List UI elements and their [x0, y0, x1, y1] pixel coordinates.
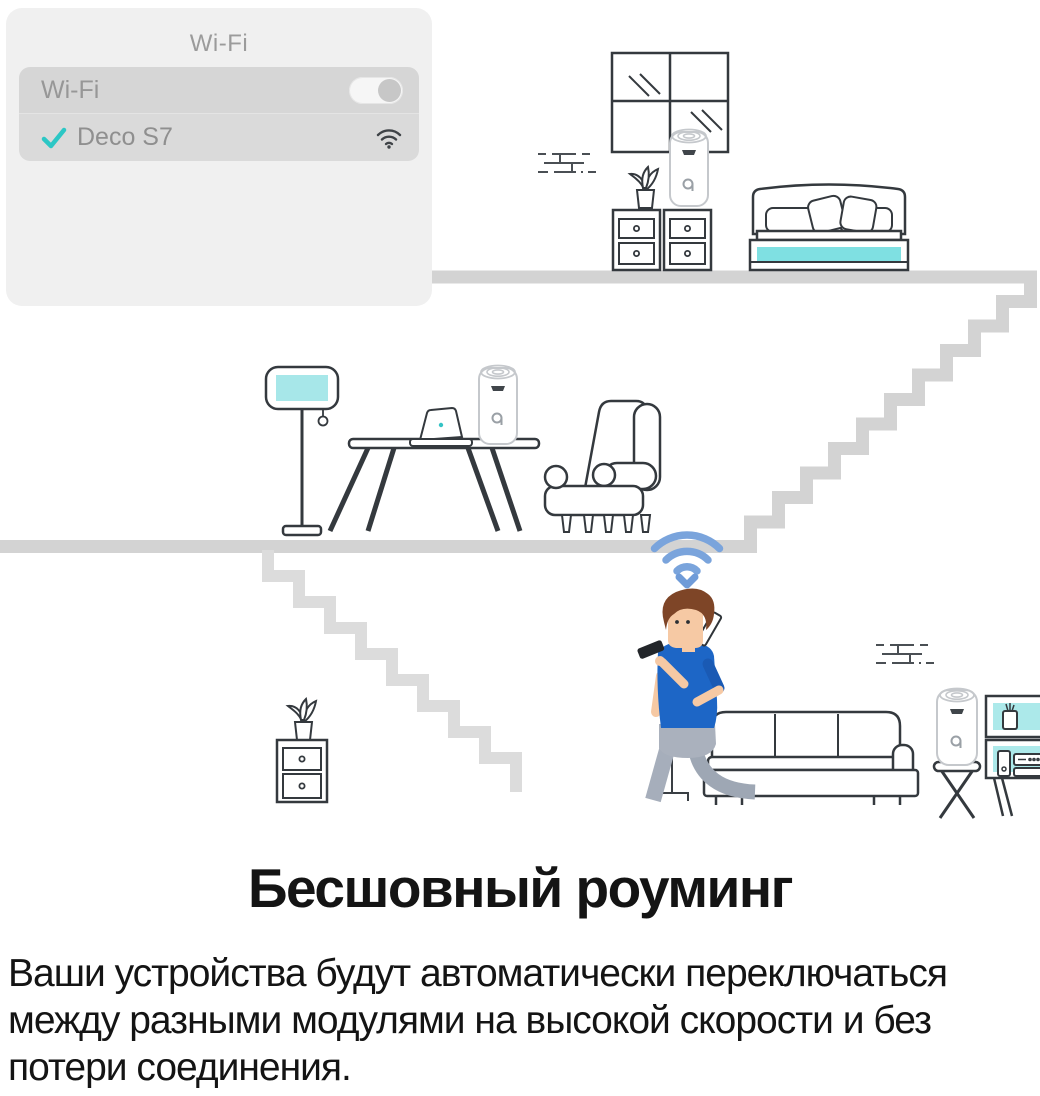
armchair-legs [562, 515, 650, 532]
wifi-toggle-row: Wi-Fi [19, 67, 419, 114]
deco-unit-upper [670, 130, 708, 207]
wifi-settings-card: Wi-Fi Wi-Fi Deco S7 [6, 8, 432, 306]
network-list-item[interactable]: Deco S7 [19, 114, 419, 161]
wifi-card-title: Wi-Fi [6, 30, 432, 58]
plant-lower [288, 699, 316, 740]
caption-body-line: потери соединения. [8, 1044, 1040, 1091]
wifi-signal-icon [375, 126, 403, 150]
lamp-screen [276, 375, 328, 401]
person-eye-right [686, 620, 690, 624]
deco-led [491, 386, 505, 391]
deco-led [682, 150, 696, 155]
table [330, 439, 539, 531]
caption-body-line: Ваши устройства будут автоматически пере… [8, 950, 1040, 997]
armchair [545, 401, 660, 532]
caption-heading: Бесшовный роуминг [0, 856, 1040, 920]
bed-accent-stripe [757, 247, 901, 262]
media-devices-icon [998, 751, 1040, 776]
person-hand [655, 656, 665, 666]
deco-led [950, 709, 964, 714]
side-table [934, 762, 980, 818]
laptop-logo-dot [439, 423, 443, 427]
plant-upper [630, 167, 658, 208]
person-hips [659, 724, 716, 758]
floor-lamp-middle [266, 367, 338, 535]
nightstand-lower [277, 740, 327, 802]
caption-section: Бесшовный роуминг Ваши устройства будут … [0, 856, 1040, 1091]
window [612, 53, 728, 152]
brick-icon-upper [538, 154, 596, 172]
caption-body-line: между разными модулями на высокой скорос… [8, 997, 1040, 1044]
wifi-toggle-switch[interactable] [349, 77, 403, 104]
caption-body: Ваши устройства будут автоматически пере… [0, 950, 1040, 1091]
deco-unit-middle [479, 366, 517, 445]
page: Wi-Fi Wi-Fi Deco S7 [0, 0, 1040, 1096]
person-eye-left [675, 620, 679, 624]
deco-unit-lower [937, 689, 977, 766]
tv-stand [986, 696, 1040, 816]
check-icon [41, 126, 67, 150]
wifi-settings-panel: Wi-Fi Deco S7 [19, 67, 419, 161]
network-name: Deco S7 [77, 123, 173, 152]
wifi-toggle-label: Wi-Fi [41, 76, 99, 105]
laptop [410, 408, 472, 446]
nightstand-upper [613, 210, 711, 270]
toggle-knob [378, 79, 401, 102]
bed [750, 185, 908, 271]
brick-icon-lower [876, 645, 934, 663]
